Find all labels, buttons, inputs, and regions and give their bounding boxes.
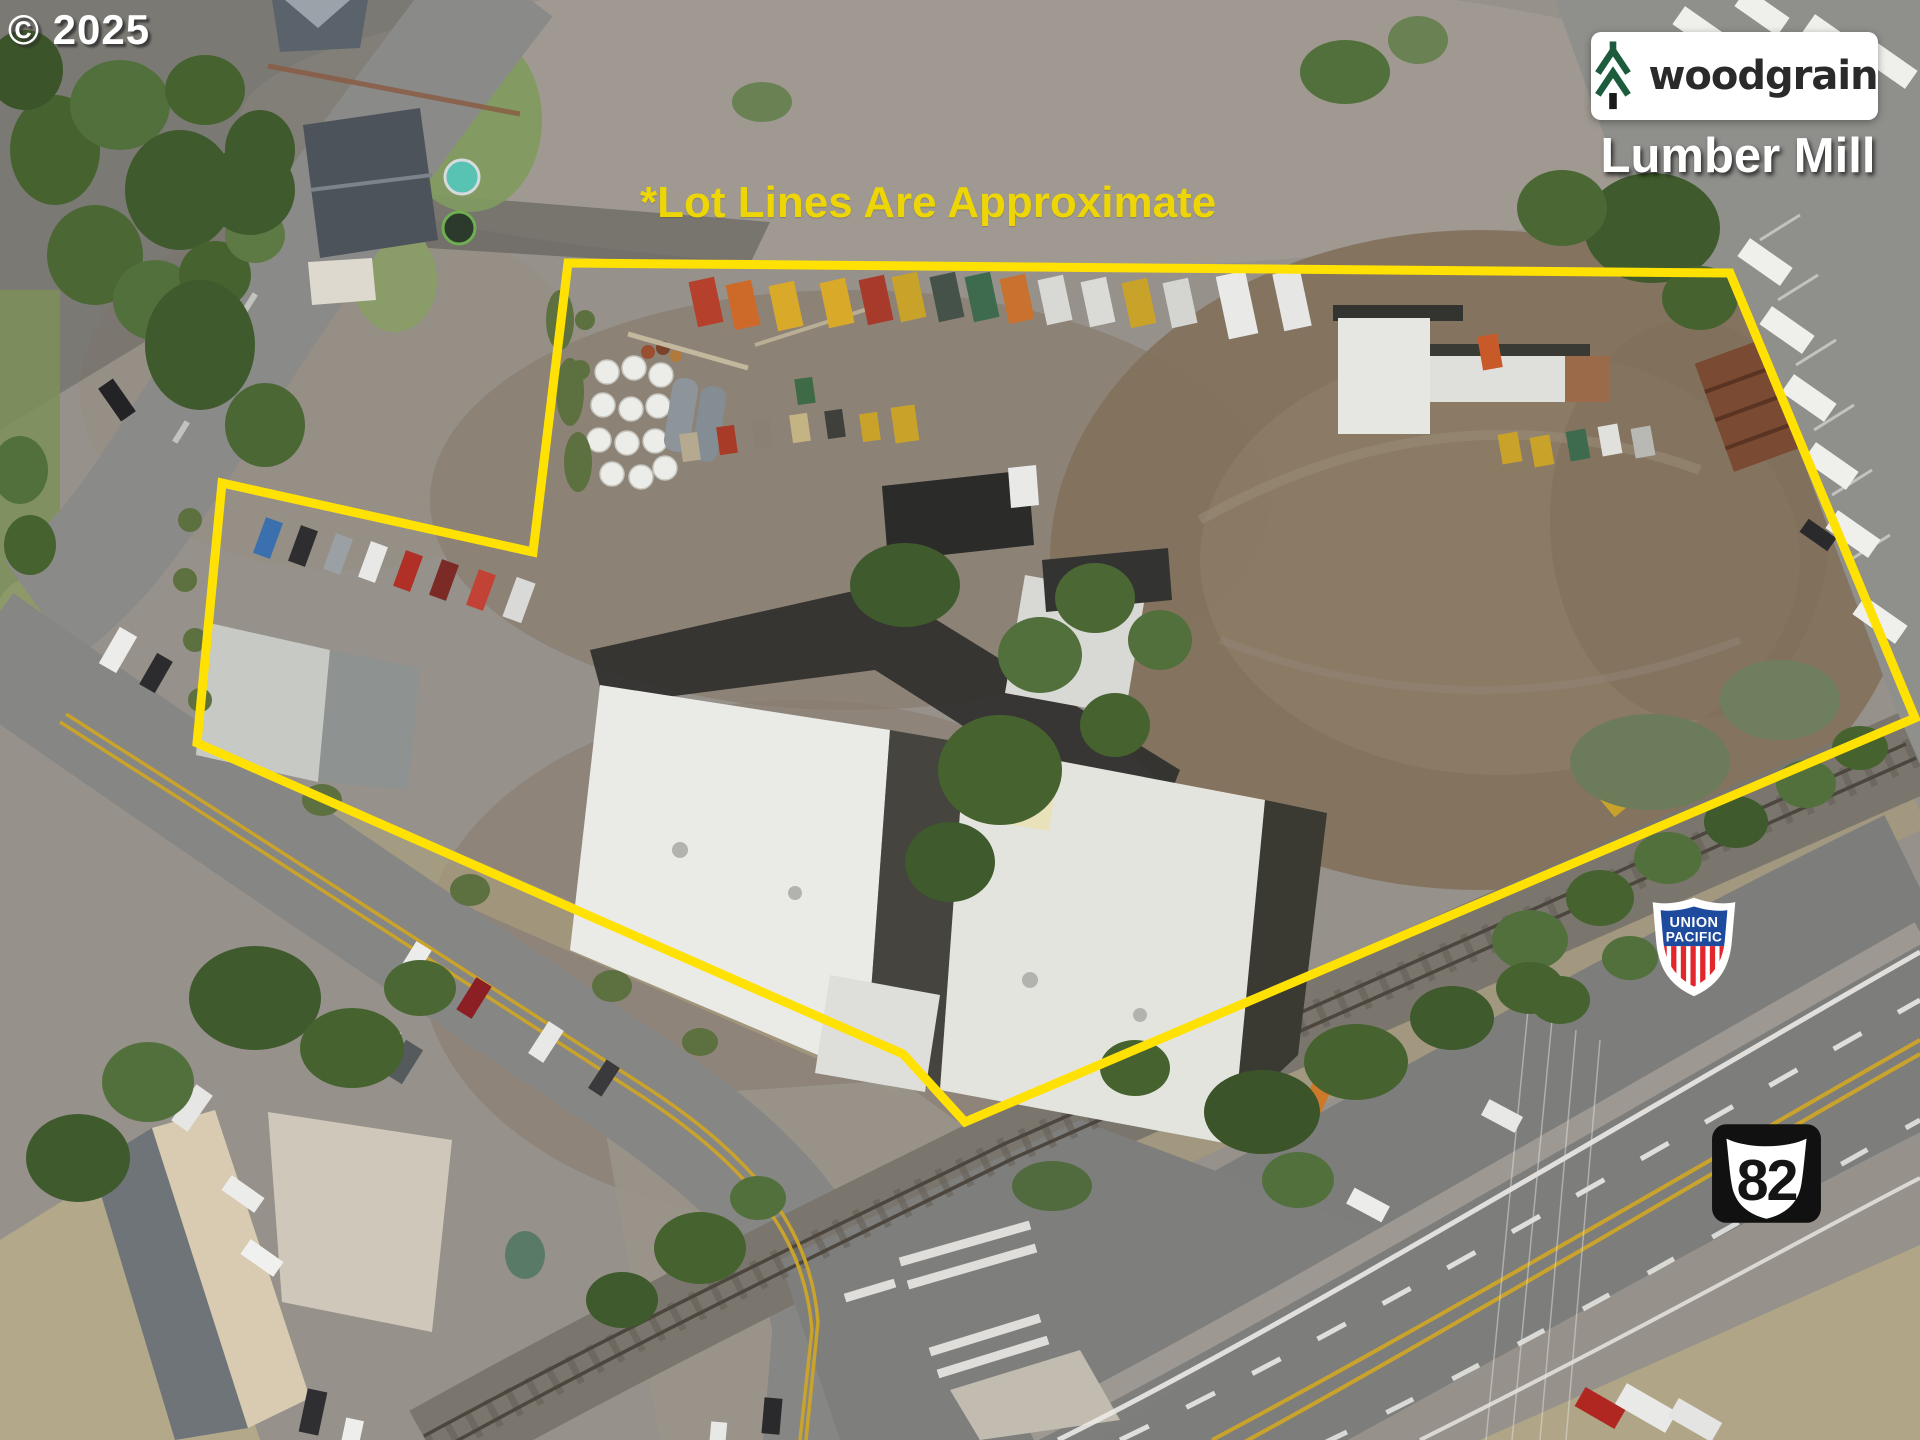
woodgrain-logo: woodgrain (1591, 32, 1878, 120)
concrete-pad (268, 1112, 452, 1332)
copyright-text: © 2025 (8, 6, 150, 54)
lumber-mill-label: Lumber Mill (1578, 128, 1898, 184)
woodgrain-tree-icon (1591, 41, 1635, 111)
svg-text:UNION: UNION (1670, 915, 1719, 931)
trampoline (443, 212, 475, 244)
route-82-shield-icon: 82 (1710, 1122, 1823, 1225)
pool (445, 160, 479, 194)
lot-lines-note: *Lot Lines Are Approximate (640, 178, 1216, 228)
svg-text:82: 82 (1737, 1149, 1797, 1213)
woodgrain-wordmark: woodgrain (1648, 53, 1877, 99)
aerial-photo: © 2025 *Lot Lines Are Approximate woodgr… (0, 0, 1920, 1440)
svg-text:PACIFIC: PACIFIC (1666, 930, 1723, 945)
shed (308, 258, 376, 305)
union-pacific-shield-icon: UNION PACIFIC (1650, 896, 1738, 998)
